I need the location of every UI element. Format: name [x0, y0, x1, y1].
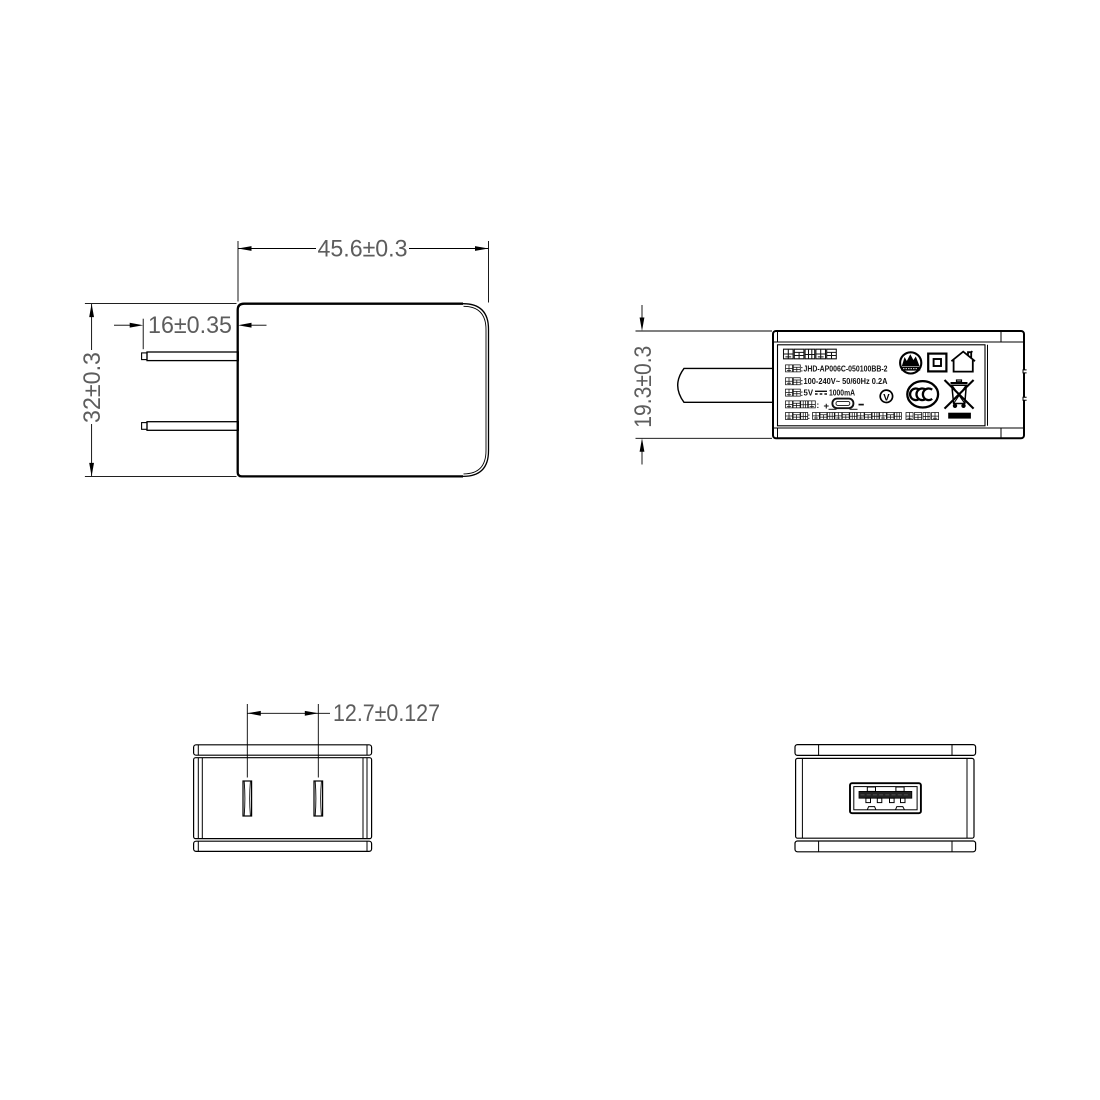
svg-text:JHD-AP006C-050100BB-2: JHD-AP006C-050100BB-2: [804, 364, 889, 373]
svg-text:16±0.35: 16±0.35: [148, 312, 232, 339]
svg-text:19.3±0.3: 19.3±0.3: [630, 346, 657, 428]
svg-text:1000mA: 1000mA: [829, 389, 855, 398]
svg-text:5V: 5V: [804, 389, 814, 398]
svg-text:12.7±0.127: 12.7±0.127: [333, 700, 440, 727]
svg-text:+: +: [824, 401, 830, 412]
svg-text:32±0.3: 32±0.3: [79, 352, 106, 423]
svg-text:100-240V~ 50/60Hz 0.2A: 100-240V~ 50/60Hz 0.2A: [804, 377, 888, 386]
svg-text:45.6±0.3: 45.6±0.3: [318, 236, 408, 263]
svg-text::: :: [817, 401, 820, 410]
svg-text:V: V: [883, 392, 890, 403]
svg-text::: :: [808, 412, 811, 421]
